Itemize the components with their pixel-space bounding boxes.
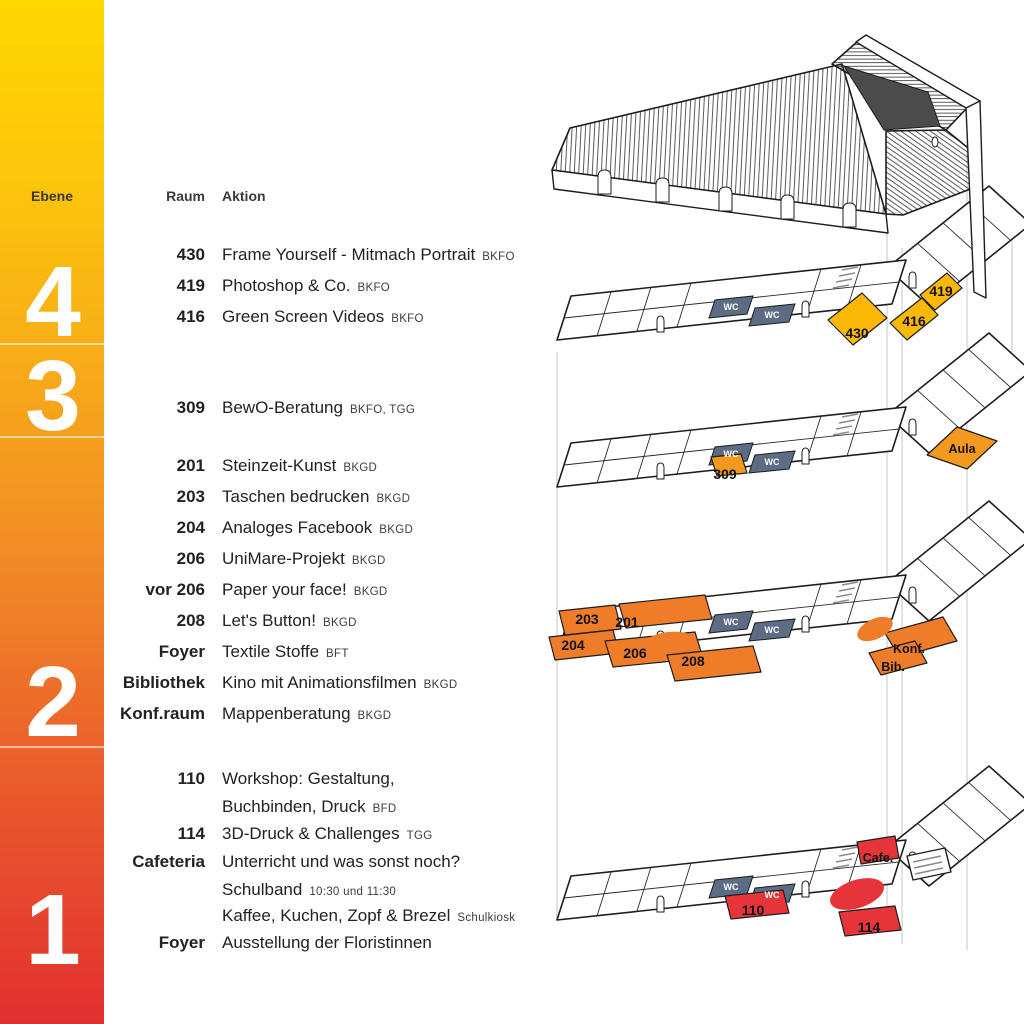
room-208-label: 208 (681, 653, 705, 669)
wc-label: WC (765, 625, 780, 635)
dormer-chimney (656, 178, 669, 202)
wc-label: WC (724, 882, 739, 892)
floor-3-plan: 309 Aula WC WC (557, 333, 1024, 487)
building-diagram: 430 419 416 WC WC 309 Aula WC WC (0, 0, 1024, 1024)
floor-1-plan: 110 114 Cafe. WC WC (557, 766, 1024, 936)
room-110-label: 110 (742, 902, 765, 918)
wc-label: WC (765, 310, 780, 320)
dormer-chimney (781, 195, 794, 219)
floor-2-plan: 203 201 204 206 208 Konf. Bib. WC WC (549, 501, 1024, 681)
room-konf-label: Konf. (893, 642, 925, 656)
room-203-label: 203 (575, 611, 599, 627)
wc-label: WC (765, 457, 780, 467)
dormer-chimney (598, 170, 611, 194)
room-430-label: 430 (845, 325, 869, 341)
room-309-label: 309 (713, 466, 737, 482)
room-bib-label: Bib. (881, 660, 905, 674)
room-201-label: 201 (615, 614, 639, 630)
room-114-label: 114 (858, 919, 881, 935)
room-206-label: 206 (623, 645, 647, 661)
wc-label: WC (724, 302, 739, 312)
wc-label: WC (724, 449, 739, 459)
gable-window (932, 137, 938, 147)
short-wing-roof-near (886, 130, 973, 215)
room-204-label: 204 (561, 637, 585, 653)
dormer-chimney (719, 187, 732, 211)
room-aula-label: Aula (948, 442, 976, 456)
wc-label: WC (765, 890, 780, 900)
room-416-label: 416 (902, 313, 926, 329)
wc-label: WC (724, 617, 739, 627)
room-cafe-label: Cafe. (863, 851, 894, 865)
room-419-label: 419 (929, 283, 953, 299)
dormer-chimney (843, 203, 856, 227)
